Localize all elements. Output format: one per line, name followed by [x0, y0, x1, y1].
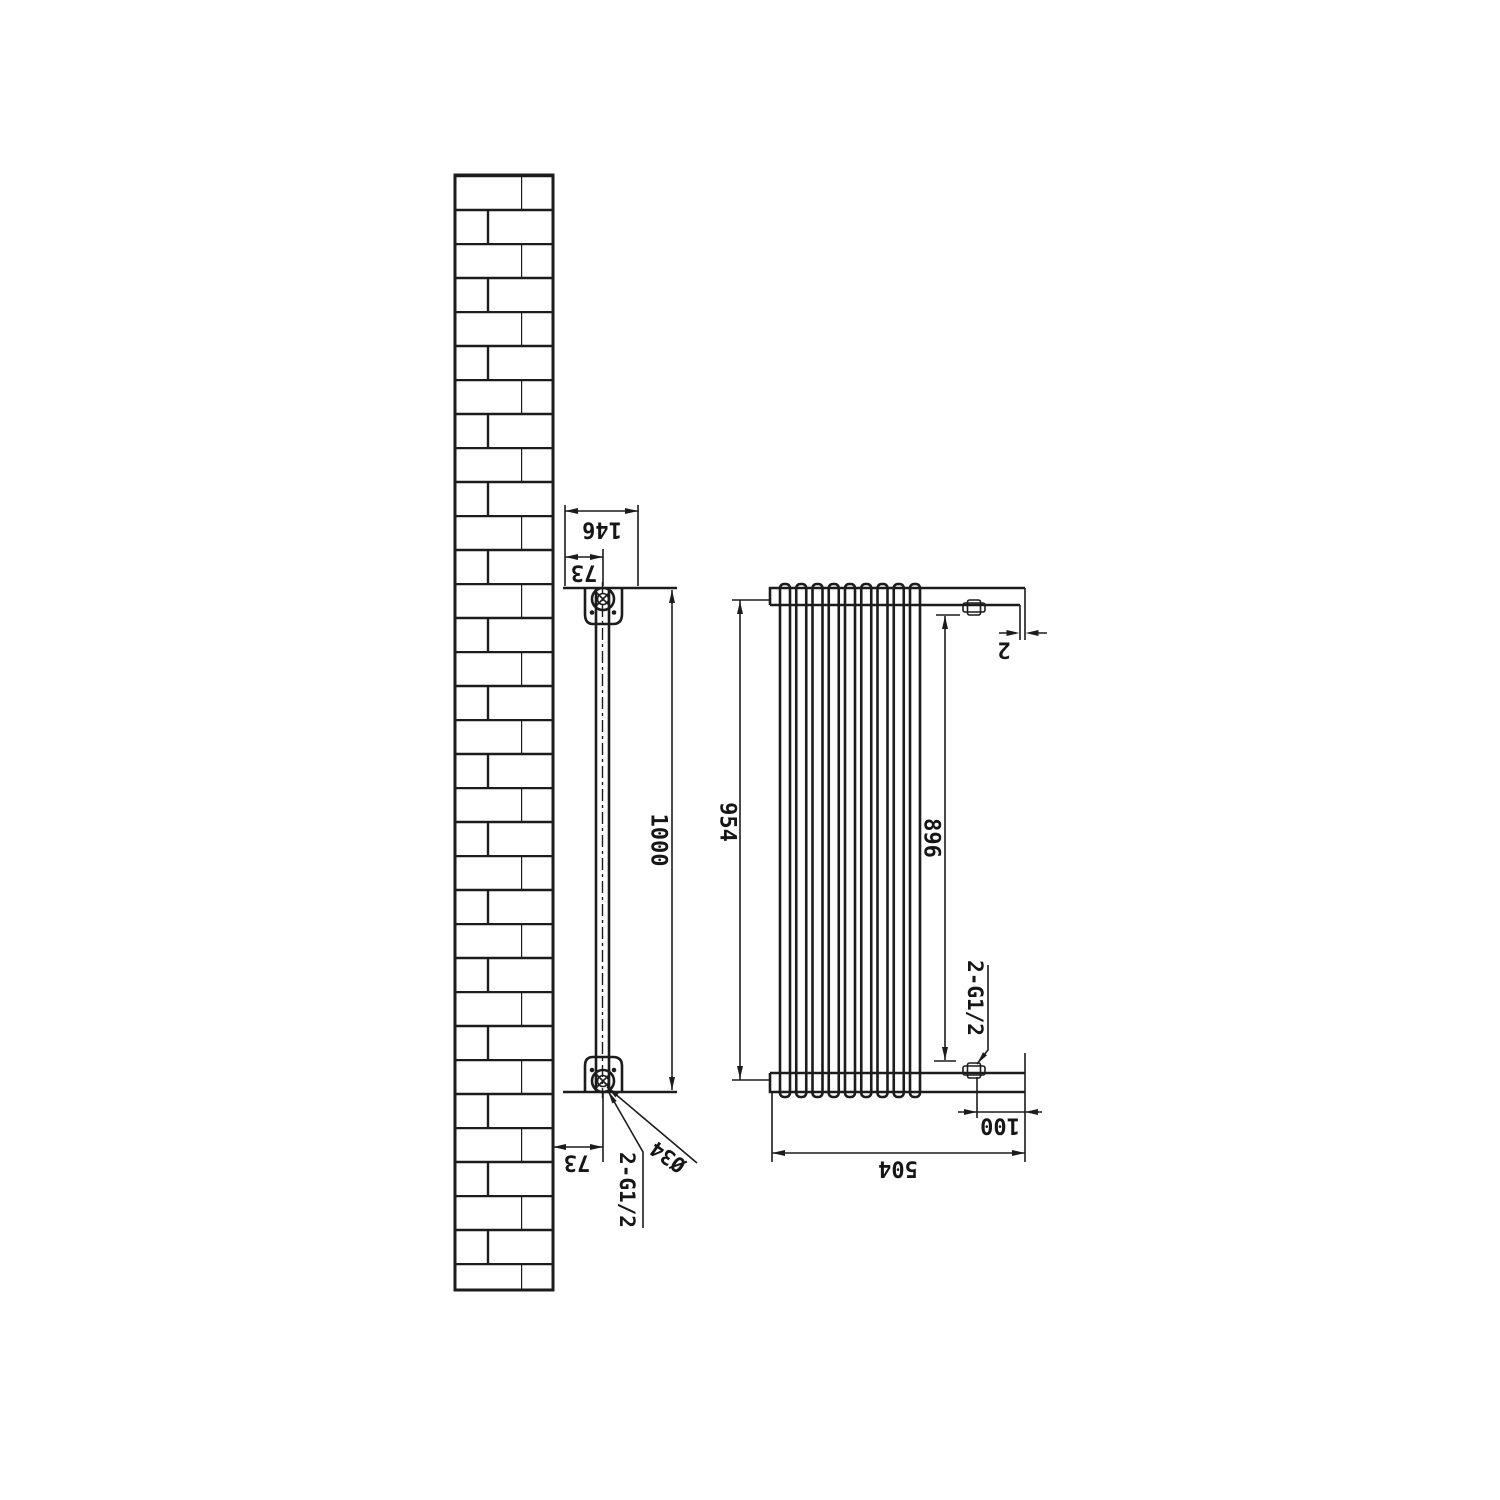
pipe-fitting-top: [963, 600, 985, 615]
label-connection-front-text: 2-G1/2: [963, 960, 987, 1036]
label-connection-side-text: 2-G1/2: [615, 1152, 639, 1228]
radiator-technical-drawing: 146 73 1000 73 Ø34: [0, 0, 1500, 1500]
dim-896: 896: [919, 615, 961, 1061]
dim-954: 954: [715, 600, 771, 1080]
label-connection-front: 2-G1/2: [963, 960, 988, 1064]
dim-1000-text: 1000: [646, 814, 671, 867]
pipe-fitting-bottom: [963, 1063, 985, 1078]
top-manifold: [770, 588, 1025, 605]
dim-73-top-text: 73: [571, 560, 598, 585]
dim-1000: 1000: [646, 590, 676, 1090]
side-view: 146 73 1000 73 Ø34: [553, 505, 697, 1228]
dim-504-text: 504: [878, 1156, 918, 1181]
dim-146-text: 146: [582, 517, 622, 542]
dim-73-top: 73: [565, 549, 603, 586]
dim-954-text: 954: [715, 802, 740, 842]
drawing-svg: 146 73 1000 73 Ø34: [0, 0, 1500, 1500]
bottom-manifold: [770, 1073, 1025, 1092]
dim-896-text: 896: [919, 818, 944, 858]
dim-2: 2: [997, 588, 1047, 662]
label-diameter-34-text: Ø34: [646, 1136, 692, 1178]
label-connection-side: 2-G1/2: [608, 1091, 643, 1228]
bottom-bracket: [585, 1057, 622, 1092]
dim-73-bottom: 73: [553, 1092, 603, 1175]
brick-wall: [455, 175, 553, 1290]
dim-100-text: 100: [980, 1113, 1020, 1138]
radiator-columns: [780, 584, 920, 1097]
top-bracket: [585, 588, 622, 624]
dim-73-bottom-text: 73: [564, 1150, 591, 1175]
dim-2-text: 2: [997, 637, 1010, 662]
dim-100: 100: [958, 1077, 1042, 1138]
front-view: 954 896 2 100: [715, 584, 1048, 1181]
